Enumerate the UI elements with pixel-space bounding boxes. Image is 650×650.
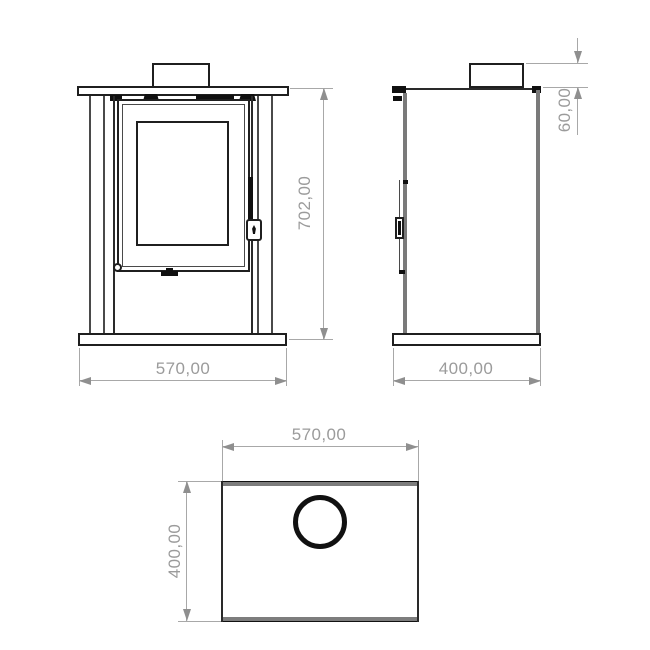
- arrow-down-icon: [574, 51, 582, 63]
- side-handle-pivot: [403, 180, 408, 184]
- front-width-label: 570,00: [133, 359, 233, 379]
- top-view-back-edge: [223, 617, 417, 622]
- arrow-right-icon: [406, 443, 418, 451]
- ext-line: [526, 63, 588, 64]
- top-view-front-edge: [223, 481, 417, 486]
- side-top-plate-line: [394, 88, 541, 90]
- dimension-line: [186, 481, 187, 621]
- side-handle-block-bar: [398, 221, 401, 235]
- arrow-right-icon: [529, 377, 541, 385]
- side-top-plate-cap-left: [392, 86, 406, 93]
- front-door-latch: [161, 271, 178, 276]
- ext-line: [418, 440, 419, 481]
- side-front-edge: [403, 93, 407, 333]
- dimension-line: [79, 380, 287, 381]
- side-base-plate: [392, 333, 541, 346]
- dimension-line: [393, 380, 541, 381]
- side-depth-label: 400,00: [416, 359, 516, 379]
- front-top-plate: [77, 86, 289, 96]
- arrow-left-icon: [222, 443, 234, 451]
- top-view-depth-label: 400,00: [165, 506, 185, 596]
- dimension-line: [323, 88, 324, 340]
- side-lower-pivot: [399, 270, 405, 274]
- front-leg-right: [257, 96, 273, 333]
- arrow-up-icon: [574, 87, 582, 99]
- arrow-left-icon: [79, 377, 91, 385]
- front-door-hinge-bottom: [113, 263, 122, 272]
- technical-drawing: 702,00 570,00 60,00: [0, 0, 650, 650]
- side-top-tick: [393, 96, 402, 101]
- side-flue-collar: [469, 63, 524, 88]
- side-collar-height-label: 60,00: [555, 80, 575, 140]
- arrow-right-icon: [275, 377, 287, 385]
- arrow-left-icon: [393, 377, 405, 385]
- front-body-edge-left: [113, 96, 115, 333]
- top-view-width-label: 570,00: [269, 425, 369, 445]
- front-leg-left: [89, 96, 105, 333]
- front-base-plate: [78, 333, 287, 346]
- dimension-line: [222, 446, 418, 447]
- arrow-up-icon: [183, 481, 191, 493]
- front-height-label: 702,00: [295, 158, 315, 248]
- side-back-edge: [536, 90, 540, 333]
- front-flue-collar: [152, 63, 210, 88]
- front-door-latch-tab: [166, 268, 173, 271]
- front-door-window: [136, 121, 229, 246]
- front-door-handle-bar: [248, 177, 253, 219]
- ext-line: [178, 621, 221, 622]
- arrow-up-icon: [320, 88, 328, 100]
- arrow-down-icon: [183, 609, 191, 621]
- top-view-flue-outlet-circle: [293, 495, 347, 549]
- arrow-down-icon: [320, 328, 328, 340]
